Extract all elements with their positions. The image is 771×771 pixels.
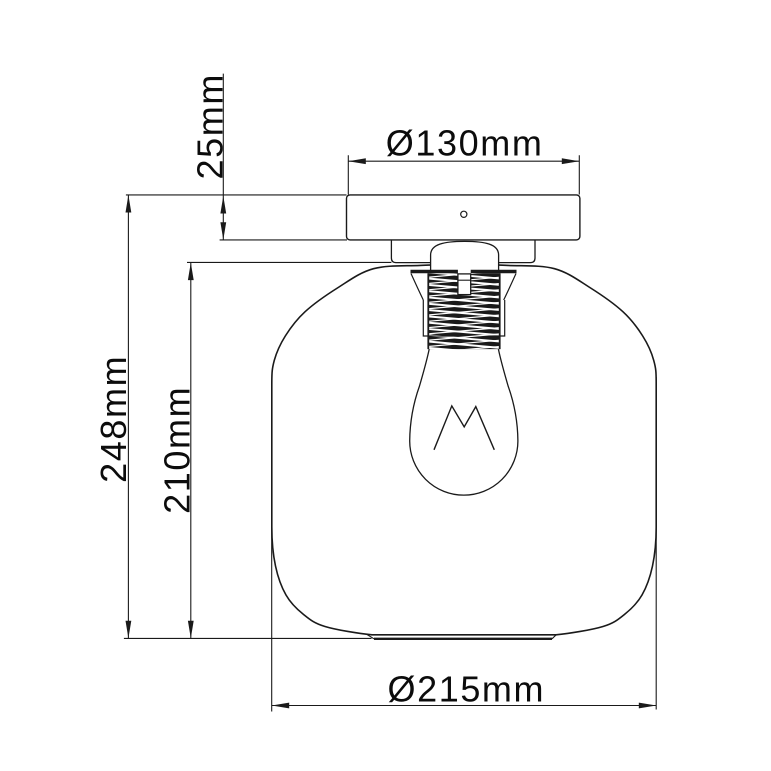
svg-text:248mm: 248mm [93,355,134,483]
svg-text:Ø215mm: Ø215mm [387,668,545,709]
svg-text:Ø130mm: Ø130mm [386,122,544,163]
svg-text:210mm: 210mm [157,386,198,514]
svg-text:25mm: 25mm [189,73,230,179]
